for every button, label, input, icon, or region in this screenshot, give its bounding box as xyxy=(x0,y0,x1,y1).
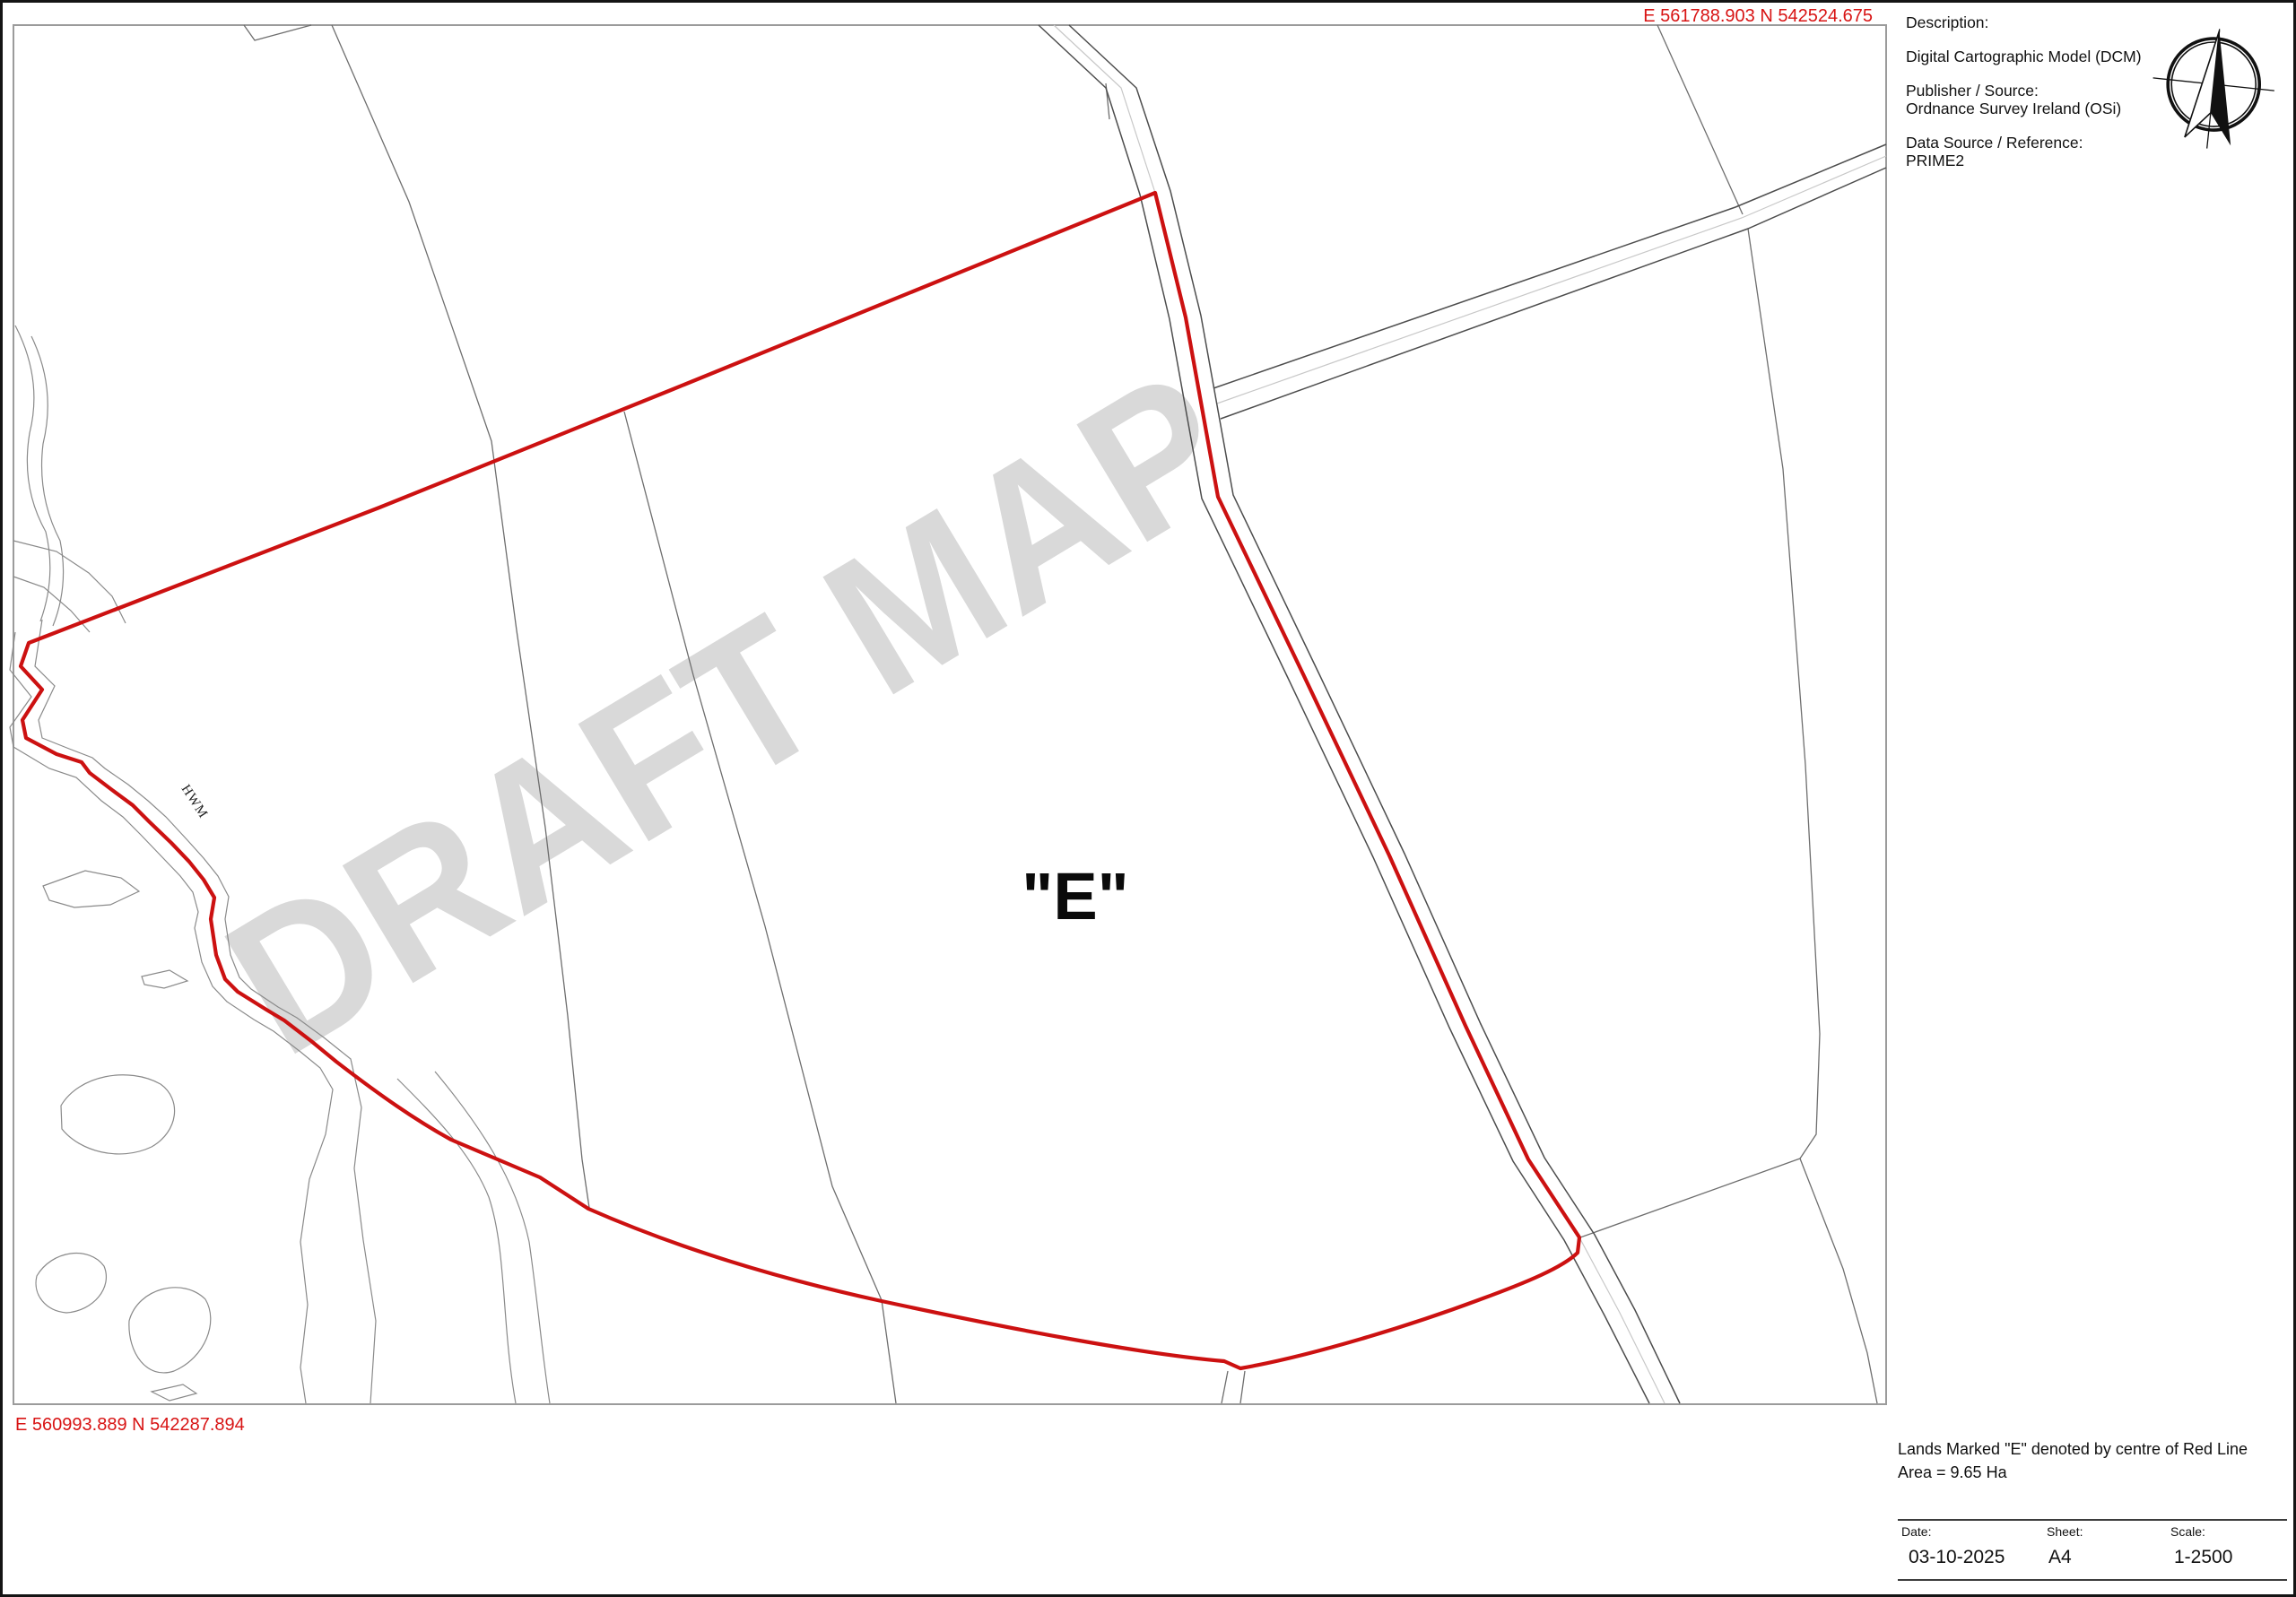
map-border xyxy=(13,25,1886,1404)
coord-bottom-left: E 560993.889 N 542287.894 xyxy=(15,1415,245,1435)
sheet-label: Sheet: xyxy=(2031,1521,2156,1539)
map-canvas: DRAFT MAP xyxy=(3,3,2296,1597)
legend-table: Date: 03-10-2025 Sheet: A4 Scale: 1-2500 xyxy=(1898,1519,2287,1581)
legend-block: Lands Marked "E" denoted by centre of Re… xyxy=(1898,1437,2287,1581)
scale-value: 1-2500 xyxy=(2156,1539,2287,1579)
parcel-label: "E" xyxy=(1022,859,1129,933)
date-value: 03-10-2025 xyxy=(1898,1539,2031,1579)
legend-line1: Lands Marked "E" denoted by centre of Re… xyxy=(1898,1437,2287,1461)
date-label: Date: xyxy=(1898,1521,2031,1539)
north-compass-icon xyxy=(2151,16,2285,160)
scale-label: Scale: xyxy=(2156,1521,2287,1539)
legend-line2: Area = 9.65 Ha xyxy=(1898,1461,2287,1484)
coord-top-right: E 561788.903 N 542524.675 xyxy=(1643,6,1873,26)
sheet-value: A4 xyxy=(2031,1539,2156,1579)
map-sheet: DRAFT MAP xyxy=(0,0,2296,1597)
